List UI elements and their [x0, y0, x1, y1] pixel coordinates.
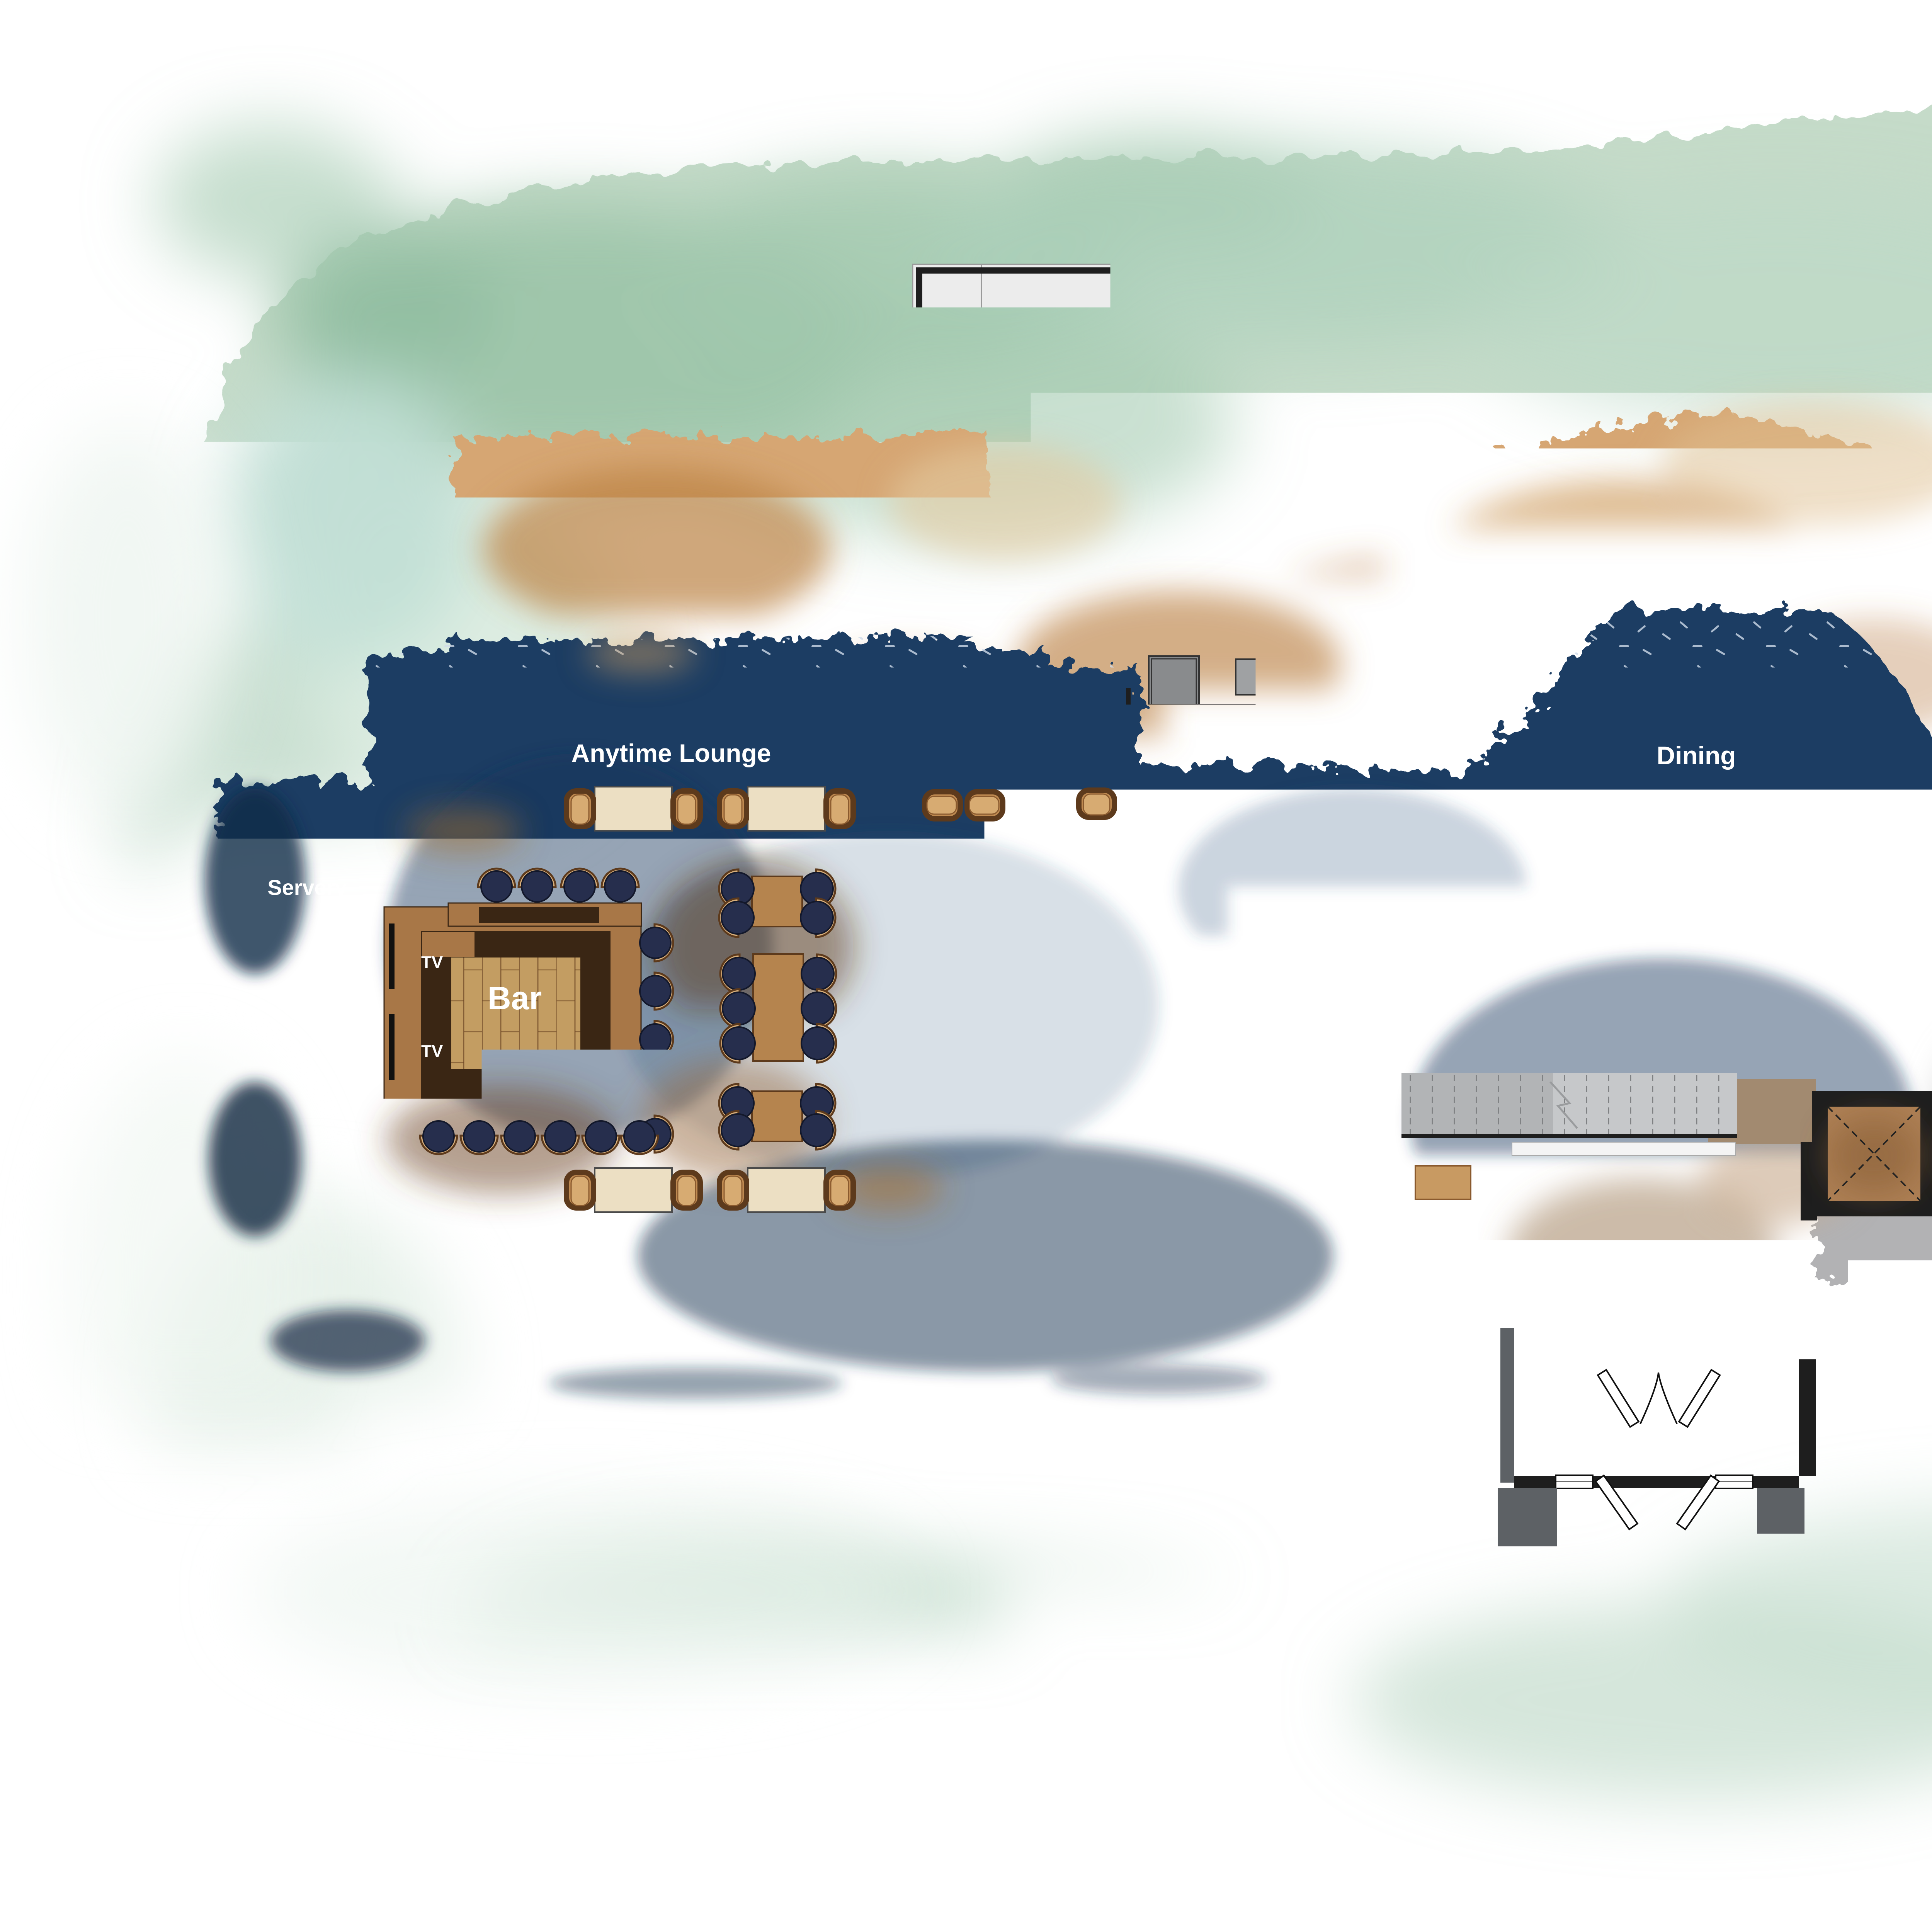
svg-text:TV: TV: [1616, 541, 1642, 563]
svg-text:TV: TV: [1749, 541, 1775, 563]
svg-text:Wine Display: Wine Display: [1457, 1019, 1596, 1044]
svg-text:Bar: Bar: [488, 980, 542, 1016]
svg-text:TV: TV: [477, 496, 503, 519]
svg-text:Storage: Storage: [270, 1096, 342, 1118]
svg-text:Vestibule: Vestibule: [1619, 1428, 1704, 1449]
svg-text:Host: Host: [1344, 1165, 1386, 1186]
svg-text:TV: TV: [386, 1196, 408, 1215]
svg-text:Dining: Dining: [1656, 741, 1736, 770]
svg-text:Anytime Lounge: Anytime Lounge: [571, 739, 771, 767]
svg-text:Liquor/: Liquor/: [273, 1073, 339, 1095]
svg-text:TV: TV: [1274, 897, 1296, 916]
svg-text:Servery: Servery: [267, 875, 347, 900]
svg-text:Servery: Servery: [1802, 1014, 1878, 1037]
svg-text:TV: TV: [976, 502, 1002, 524]
svg-text:Men’s Bathroom: Men’s Bathroom: [1877, 1350, 1932, 1366]
svg-text:TV: TV: [1091, 717, 1113, 736]
svg-text:TV: TV: [421, 1042, 443, 1061]
svg-text:Entry Lobby: Entry Lobby: [1592, 1231, 1731, 1258]
svg-text:TV: TV: [421, 953, 443, 972]
